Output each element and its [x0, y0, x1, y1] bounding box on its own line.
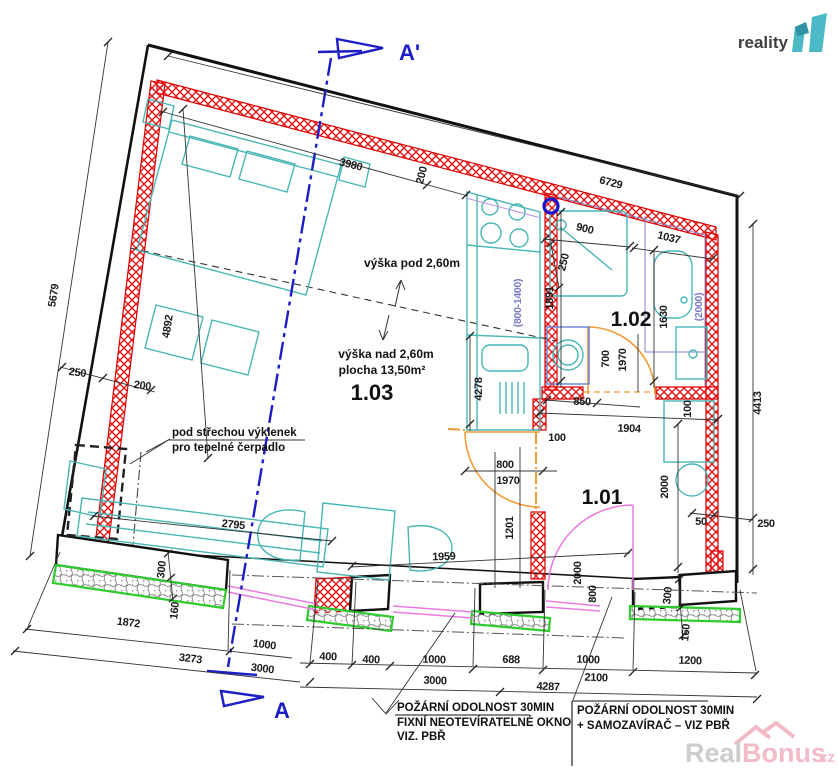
dim-bath-door-h: 1970: [617, 348, 629, 371]
dim-seg-1872: 1872: [116, 616, 141, 631]
annotation-niche-1: pod střechou výklenek: [172, 427, 297, 439]
dim-pier-400b: 400: [362, 654, 380, 667]
dim-left-wall: 250: [68, 366, 87, 380]
chair-left: [258, 510, 305, 560]
annotation-area: plocha 13,50m²: [339, 363, 426, 377]
fire-left-line3: VIZ. PBŘ: [397, 730, 446, 743]
dim-toilet-depth: 1630: [658, 305, 670, 328]
dim-top-wall: 250: [556, 252, 572, 272]
sink-icon: [482, 345, 528, 371]
room-label-hall: 1.01: [582, 486, 623, 509]
window-1: [228, 586, 317, 610]
pillar-1: [350, 575, 390, 611]
dim-right-height: 4413: [752, 391, 764, 414]
dim-bath-parapet: (2000): [693, 293, 705, 322]
dim-seg-1000a: 1000: [252, 638, 277, 653]
dim-pier-688: 688: [502, 654, 520, 667]
watermark-bonus: Bonus: [742, 738, 826, 768]
dim-shower-width: 900: [575, 221, 595, 237]
dim-seg-3000b: 3000: [423, 675, 447, 688]
table: [317, 503, 395, 580]
dim-shower-depth: 1891: [544, 286, 556, 309]
dim-right-gap: 50: [695, 516, 707, 528]
dim-top-inner: 3980: [338, 156, 364, 173]
dim-paving-left: 160: [168, 601, 182, 620]
dim-seg-4287: 4287: [536, 681, 560, 694]
dim-seg-2100: 2100: [584, 672, 608, 685]
dim-hall-gap1: 100: [682, 400, 694, 418]
dim-pier-400a: 400: [319, 651, 337, 664]
pillar-2: [480, 582, 543, 614]
paving-4: [630, 606, 740, 622]
floor-plan-page: A' A: [0, 0, 839, 768]
stool: [676, 464, 708, 496]
floor-plan-drawing: A' A: [0, 0, 839, 768]
dim-plinth-left: 300: [155, 560, 169, 579]
fire-right-line1: POŽÁRNÍ ODOLNOST 30MIN: [577, 704, 734, 717]
burner-icon: [482, 199, 498, 215]
dim-bed-wall: 4892: [160, 314, 176, 339]
dim-main-door-w: 800: [496, 459, 514, 471]
dim-win-1200: 1200: [678, 655, 702, 668]
dim-right-wall: 250: [757, 518, 775, 530]
dim-bath-door-w: 700: [600, 350, 612, 368]
dim-left-wall2: 200: [133, 379, 152, 393]
armchair-2: [201, 320, 259, 375]
dim-hall-gap2: 100: [548, 432, 566, 444]
dim-hall-a: 850: [573, 396, 591, 409]
fire-note-left: POŽÁRNÍ ODOLNOST 30MIN FIXNÍ NEOTEVÍRATE…: [372, 613, 571, 743]
dim-seg-3273: 3273: [178, 652, 203, 667]
dim-left-height: 5679: [46, 283, 62, 308]
dim-hall-depth: 2000: [659, 475, 671, 498]
dim-main-door-h: 1970: [496, 475, 519, 487]
section-flag-bottom: [207, 671, 264, 706]
washbasin-icon: [676, 327, 707, 379]
fire-left-line1: POŽÁRNÍ ODOLNOST 30MIN: [397, 701, 554, 714]
dining-set: [258, 503, 452, 580]
armchair-1: [145, 305, 203, 360]
dim-toilet-width: 1037: [656, 229, 682, 246]
dim-plinth-right: 300: [661, 586, 675, 605]
dim-hall-b: 1904: [617, 423, 642, 436]
fire-right-line2: + SAMOZAVÍRAČ – VIZ PBŘ: [577, 719, 731, 732]
window-2: [393, 606, 473, 618]
burner-icon: [481, 223, 501, 243]
dim-kitchen-length: 4278: [473, 377, 485, 400]
bed: [137, 120, 341, 295]
dim-table-length: 1959: [432, 551, 456, 564]
dim-balc-door-h: 2000: [572, 561, 584, 584]
pillar-4: [680, 571, 736, 605]
room-label-bathroom: 1.02: [611, 308, 652, 331]
niche-annotation: pod střechou výklenek pro tepelné čerpad…: [172, 427, 297, 454]
drainer-lines: [500, 382, 524, 414]
wall-right: [706, 232, 718, 578]
section-label-bottom: A: [274, 698, 290, 723]
section-flag-top: [318, 39, 383, 58]
dim-top-width: 6729: [598, 174, 624, 191]
reality11-icon: [792, 13, 827, 52]
dim-kitchen-parapet: (800-1400): [512, 279, 524, 327]
dim-sofa-length: 2795: [221, 518, 246, 532]
dim-top-wall2: 200: [414, 165, 430, 185]
section-label-top: A': [399, 40, 420, 65]
annotation-height-over: výška nad 2,60m: [338, 347, 433, 361]
branding-top: reality: [738, 13, 827, 52]
dim-door-pier: 1201: [504, 516, 516, 539]
watermark-real: Real: [685, 738, 742, 768]
wall-pier-center: [531, 512, 545, 579]
fire-left-line2: FIXNÍ NEOTEVÍRATELNÉ OKNO: [397, 716, 571, 729]
dim-balc-door-w: 800: [587, 585, 599, 603]
annotation-niche-2: pro tepelné čerpadlo: [172, 442, 285, 454]
dim-paving-right: 160: [679, 623, 693, 642]
wall-bath-bottom-right: [656, 387, 718, 399]
logo-reality-text: reality: [738, 33, 789, 52]
watermark-cz: .cz: [815, 749, 835, 766]
burner-icon: [510, 229, 528, 247]
annotation-height-under: výška pod 2,60m: [364, 256, 460, 270]
room-label-living: 1.03: [351, 380, 394, 405]
paving-3: [471, 611, 550, 631]
